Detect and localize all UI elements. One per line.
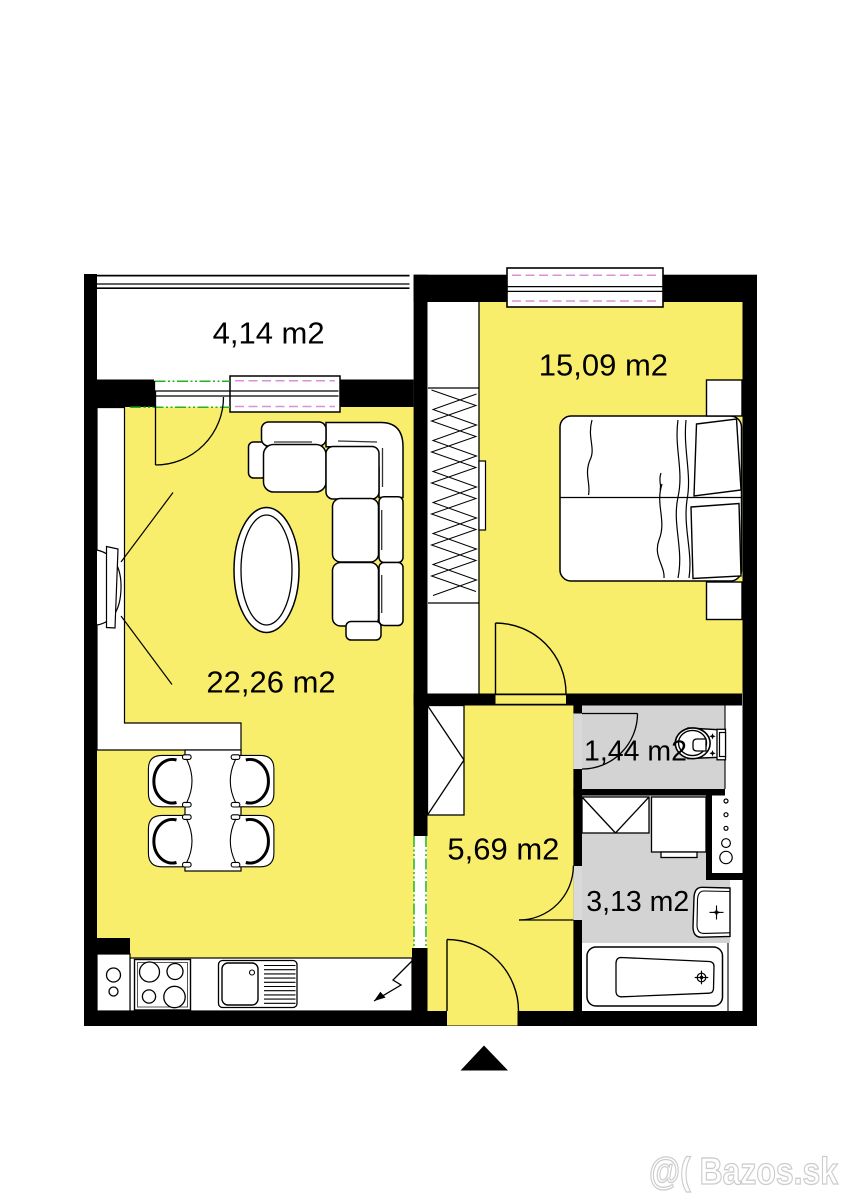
- svg-text:22,26 m2: 22,26 m2: [206, 665, 335, 700]
- svg-text:5,69 m2: 5,69 m2: [447, 832, 559, 867]
- svg-text:15,09 m2: 15,09 m2: [539, 348, 668, 383]
- svg-text:@( Bazos.sk: @( Bazos.sk: [649, 1151, 839, 1193]
- svg-text:3,13 m2: 3,13 m2: [586, 886, 689, 918]
- svg-text:4,14 m2: 4,14 m2: [213, 316, 325, 351]
- svg-text:1,44 m2: 1,44 m2: [584, 736, 687, 768]
